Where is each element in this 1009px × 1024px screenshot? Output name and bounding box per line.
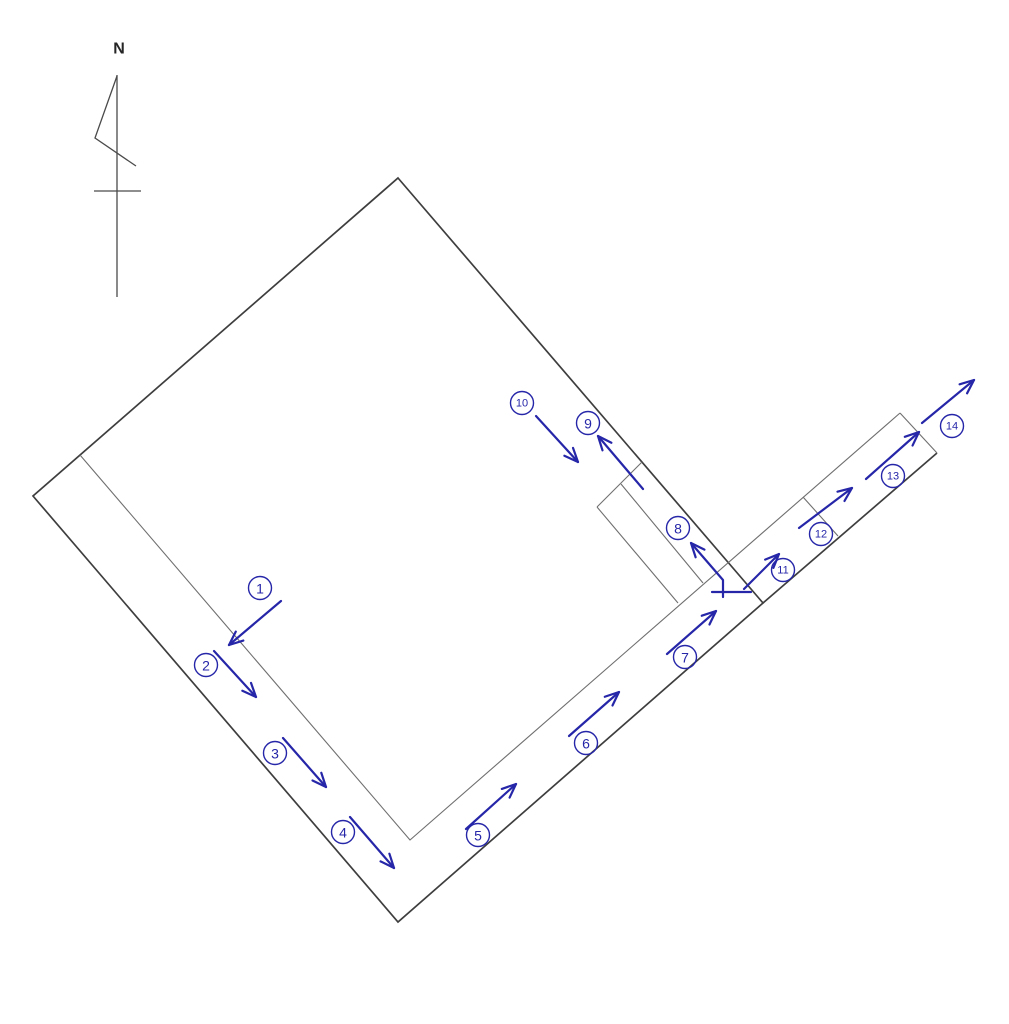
- marker-13: 13: [866, 432, 919, 488]
- marker-3: 3: [264, 738, 327, 787]
- arrow-shaft-1: [229, 601, 281, 645]
- label-number-12: 12: [815, 529, 827, 541]
- arrow-shaft-11: [744, 554, 779, 589]
- marker-2: 2: [195, 651, 257, 697]
- survey-plan-diagram: N 1234567891011121314: [0, 0, 1009, 1024]
- label-number-6: 6: [582, 736, 590, 752]
- arrow-shaft-10: [536, 416, 578, 462]
- notch-outer-side: [597, 507, 678, 603]
- marker-10: 10: [511, 392, 579, 463]
- label-number-7: 7: [681, 650, 689, 666]
- marker-6: 6: [569, 692, 619, 755]
- marker-4: 4: [332, 817, 395, 868]
- label-number-8: 8: [674, 521, 682, 537]
- marker-5: 5: [466, 784, 516, 847]
- north-label: N: [113, 41, 125, 58]
- label-number-13: 13: [887, 471, 899, 483]
- arrow-shaft-9: [598, 436, 643, 489]
- diagram-canvas: N 1234567891011121314: [0, 0, 1009, 1024]
- label-number-11: 11: [777, 565, 788, 577]
- inner-corridor-line: [80, 413, 900, 840]
- notch-top-cap: [597, 462, 642, 507]
- north-flag: [95, 76, 136, 166]
- arrow-shaft-2: [214, 651, 256, 697]
- arrow-shaft-6: [569, 692, 619, 736]
- marker-14: 14: [922, 380, 974, 438]
- parcel-boundary: [33, 178, 763, 922]
- marker-1: 1: [229, 577, 281, 646]
- numbered-direction-markers-group: 1234567891011121314: [195, 380, 975, 868]
- label-number-3: 3: [271, 746, 279, 762]
- marker-9: 9: [577, 412, 644, 490]
- boundary-lines-group: [33, 178, 937, 922]
- marker-7: 7: [667, 611, 716, 669]
- label-number-2: 2: [202, 658, 210, 674]
- label-number-10: 10: [516, 398, 528, 410]
- marker-8: 8: [667, 517, 724, 598]
- label-number-9: 9: [584, 416, 592, 432]
- arrow-shaft-14: [922, 380, 974, 423]
- marker-11: 11: [744, 554, 795, 589]
- label-number-4: 4: [339, 825, 347, 841]
- label-number-1: 1: [256, 581, 264, 597]
- arrow-shaft-5: [466, 784, 516, 829]
- north-arrow: N: [94, 41, 141, 298]
- marker-12: 12: [799, 488, 852, 546]
- notch-divider: [621, 484, 703, 583]
- label-number-5: 5: [474, 828, 482, 844]
- arrow-shaft-4: [350, 817, 394, 868]
- label-number-14: 14: [946, 421, 958, 433]
- arrow-shaft-3: [283, 738, 326, 787]
